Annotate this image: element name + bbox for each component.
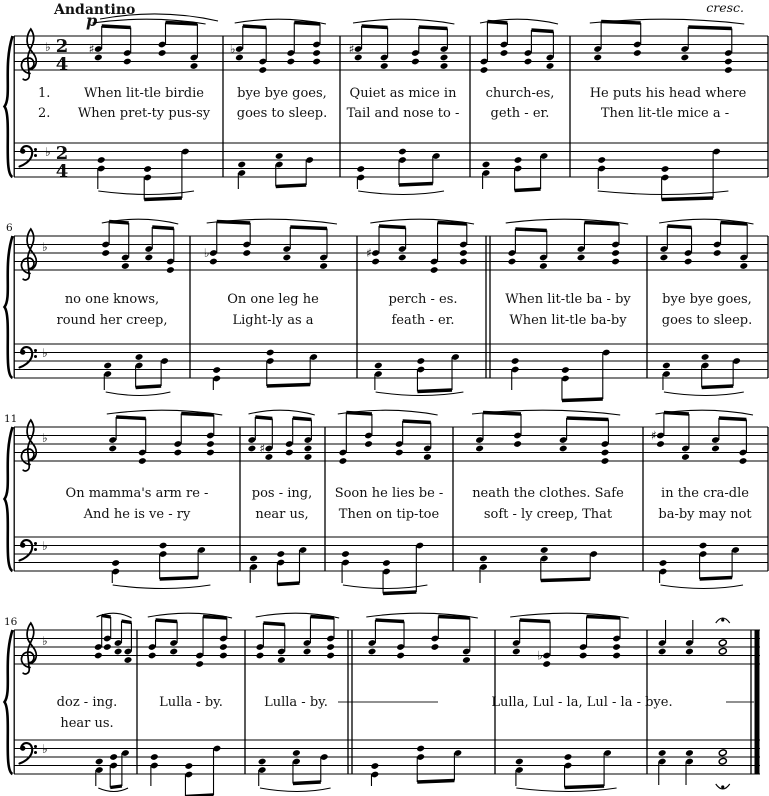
key-signature-flat-icon: ♭	[42, 634, 48, 648]
sharp-accidental-icon: ♯	[349, 42, 355, 56]
key-signature-flat-icon: ♭	[45, 40, 51, 54]
score-svg: Andantino p cresc. 6 11 16 2 4 2 4 ♭ ♭ ♭…	[0, 0, 769, 796]
lyric-syllables: soft - ly creep, That	[484, 507, 613, 522]
measure-number-6: 6	[6, 222, 13, 234]
crescendo-marking: cresc.	[706, 0, 744, 15]
lyric-syllables: doz - ing.	[57, 695, 118, 710]
sharp-accidental-icon: ♯	[89, 42, 95, 56]
measure-number-11: 11	[4, 413, 17, 425]
bass-clef-icon	[20, 146, 38, 166]
sheet-music-page: Andantino p cresc. 6 11 16 2 4 2 4 ♭ ♭ ♭…	[0, 0, 769, 796]
verse-number-1: 1.	[38, 86, 50, 101]
flat-accidental-icon: ♭	[204, 246, 210, 260]
lyric-syllables: geth - er.	[491, 106, 550, 121]
time-signature-denominator: 4	[56, 54, 69, 75]
flat-accidental-icon: ♭	[537, 649, 543, 663]
lyric-syllables: Lulla - by.	[264, 695, 328, 710]
bass-clef-icon	[20, 347, 38, 367]
sharp-accidental-icon: ♯	[366, 246, 372, 260]
lyric-syllables: no one knows,	[65, 292, 159, 307]
lyric-syllables: bye bye goes,	[662, 292, 752, 307]
music-notation: ♯♭♯♭♯♯♯♭	[5, 19, 769, 796]
system-2-notation	[5, 219, 769, 400]
lyric-syllables: Soon he lies be -	[335, 486, 444, 501]
key-signature-flat-icon: ♭	[42, 240, 48, 254]
dynamic-marking-p: p	[86, 11, 97, 30]
key-signature-flat-icon: ♭	[42, 431, 48, 445]
lyric-syllables: Quiet as mice in	[350, 86, 458, 101]
lyric-syllables: pos - ing,	[252, 486, 312, 501]
lyric-syllables: When lit-tle ba - by	[505, 292, 631, 307]
measure-number-16: 16	[4, 616, 18, 628]
lyric-syllables: When lit-tle ba-by	[509, 313, 627, 328]
lyric-syllables: goes to sleep.	[662, 313, 753, 328]
lyric-syllables: goes to sleep.	[237, 106, 328, 121]
lyric-syllables: near us,	[255, 507, 308, 522]
sharp-accidental-icon: ♯	[259, 442, 265, 456]
lyric-syllables: When pret-ty pus-sy	[78, 106, 211, 121]
lyric-syllables: round her creep,	[57, 313, 168, 328]
lyric-syllables: church-es,	[486, 86, 555, 101]
system-brace	[5, 427, 13, 571]
bass-clef-icon	[20, 743, 38, 763]
system-brace	[5, 36, 13, 177]
lyric-syllables: Then on tip-toe	[339, 507, 440, 522]
treble-clef-icon	[21, 623, 36, 674]
lyric-syllables: And he is ve - ry	[83, 507, 191, 522]
lyric-syllables: perch - es.	[388, 292, 457, 307]
lyric-syllables: Then lit-tle mice a -	[601, 106, 729, 121]
lyric-syllables: hear us.	[60, 716, 113, 731]
lyric-syllables: bye bye goes,	[237, 86, 327, 101]
lyric-syllables: He puts his head where	[590, 86, 747, 101]
lyric-syllables: feath - er.	[391, 313, 454, 328]
verse-number-2: 2.	[38, 106, 50, 121]
system-brace	[5, 236, 13, 378]
lyric-syllables: Lulla, Lul - la, Lul - la - bye.	[491, 695, 672, 710]
lyric-syllables: On one leg he	[227, 292, 319, 307]
treble-clef-icon	[21, 229, 36, 280]
system-brace	[5, 630, 13, 774]
system-4-notation	[5, 613, 761, 796]
lyric-syllables: neath the clothes. Safe	[472, 486, 624, 501]
lyric-syllables: On mamma's arm re -	[66, 486, 209, 501]
lyric-syllables: When lit-tle birdie	[84, 86, 204, 101]
lyric-syllables: in the cra-dle	[661, 486, 749, 501]
lyric-syllables: Lulla - by.	[159, 695, 223, 710]
treble-clef-icon	[21, 29, 36, 80]
lyric-syllables: Light-ly as a	[232, 313, 313, 328]
time-signature-denominator: 4	[56, 161, 69, 182]
lyric-syllables: ba-by may not	[658, 507, 752, 522]
treble-clef-icon	[21, 420, 36, 471]
flat-accidental-icon: ♭	[230, 42, 236, 56]
bass-clef-icon	[20, 540, 38, 560]
lyric-syllables: Tail and nose to -	[347, 106, 460, 121]
sharp-accidental-icon: ♯	[651, 429, 657, 443]
